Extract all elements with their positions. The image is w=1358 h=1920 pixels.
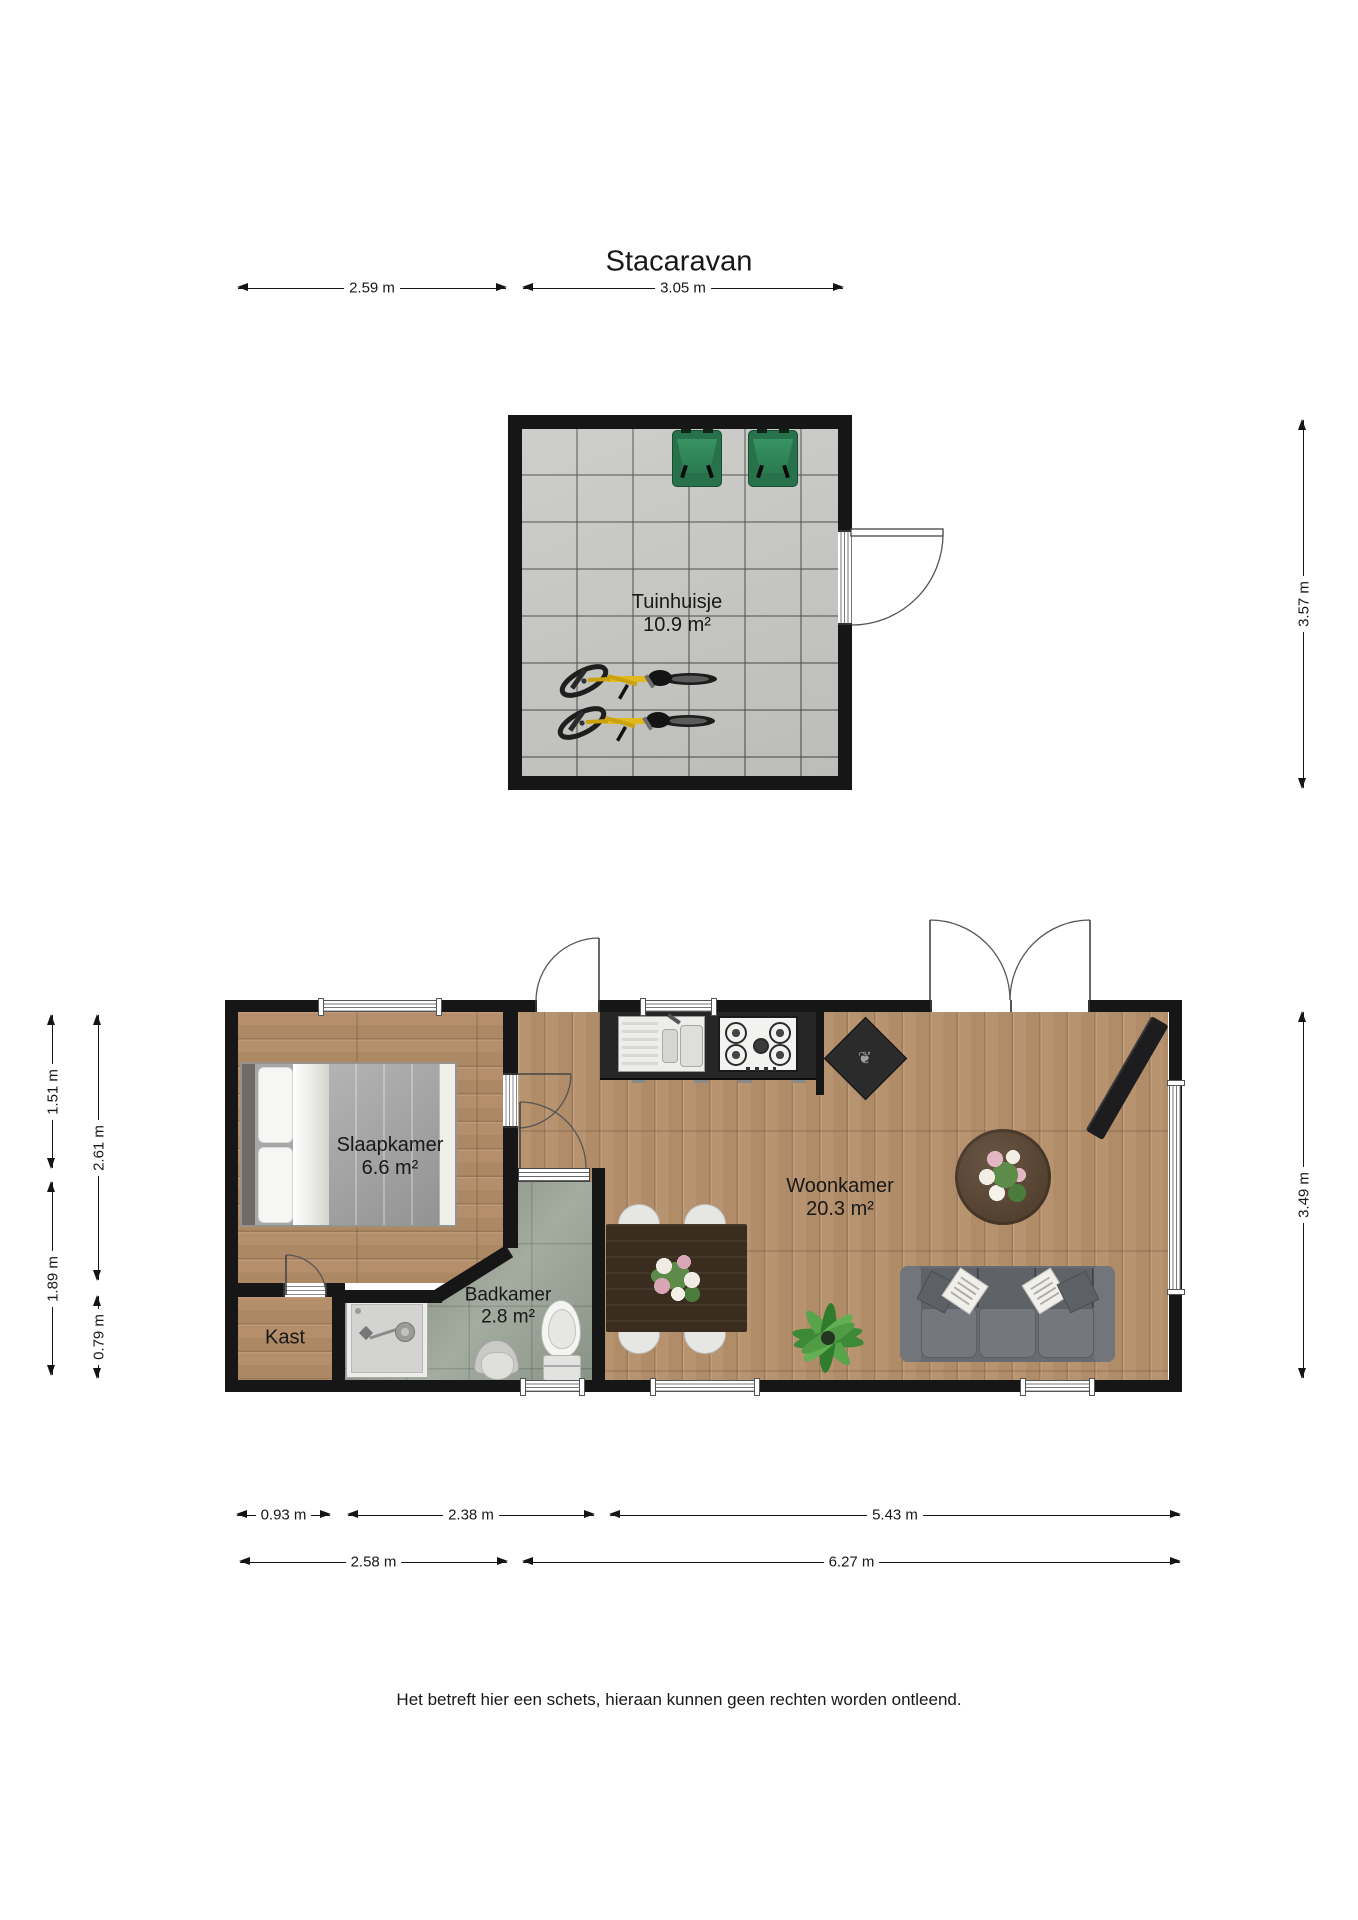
seat-cushion (1038, 1308, 1094, 1358)
arrow-right-icon (320, 1510, 331, 1518)
badkamer-wall-top-left (332, 1290, 442, 1303)
dim-bottom-r2-woonkamer: 6.27 m (523, 1562, 1180, 1563)
dim-label: 0.79 m (91, 1309, 108, 1365)
arrow-right-icon (584, 1510, 595, 1518)
kast-door-swing-icon (284, 1252, 330, 1297)
room-name: Badkamer (465, 1284, 552, 1305)
seat-cushion (979, 1308, 1035, 1358)
arrow-down-icon (47, 1158, 55, 1169)
room-name: Woonkamer (786, 1175, 893, 1197)
dim-top-left: 2.59 m (238, 288, 506, 289)
bicycle-icon (556, 703, 715, 743)
front-door-swing-icon (533, 935, 603, 1003)
slaapkamer-window (323, 1000, 437, 1012)
gas-hob (718, 1016, 798, 1072)
kast-wall-top-left (225, 1283, 283, 1297)
arrow-left-icon (522, 1557, 533, 1565)
dim-bottom-r1-woonkamer: 5.43 m (610, 1515, 1180, 1516)
counter-handle (738, 1080, 752, 1083)
flower-bouquet-icon (975, 1147, 1031, 1207)
door-leaf (851, 529, 943, 536)
tuinhuisje-wall-left (508, 415, 522, 790)
kitchen-window (645, 1000, 712, 1012)
woonkamer-window-bottom (1025, 1380, 1090, 1392)
dim-label: 2.58 m (346, 1553, 402, 1572)
shower (347, 1300, 427, 1377)
badkamer-label: Badkamer 2.8 m² (465, 1284, 552, 1327)
floorplan-page: Stacaravan 2.59 m 3.05 m (0, 0, 1358, 1920)
arrow-down-icon (1298, 1368, 1306, 1379)
dim-bottom-r1-badkamer: 2.38 m (348, 1515, 594, 1516)
tuinhuisje-wall-bottom (508, 776, 852, 790)
arrow-left-icon (522, 283, 533, 291)
arrow-right-icon (1170, 1557, 1181, 1565)
dim-label: 2.38 m (443, 1506, 499, 1525)
room-area: 6.6 m² (337, 1157, 444, 1180)
main-wall-left (225, 1000, 238, 1392)
dim-left-inner-2: 0.79 m (98, 1296, 99, 1378)
dim-label: 5.43 m (867, 1506, 923, 1525)
arrow-up-icon (93, 1014, 101, 1025)
hob-knobs (746, 1067, 776, 1071)
bed-headboard (242, 1064, 255, 1225)
dim-main-height: 3.49 m (1303, 1012, 1304, 1378)
sofa-seats (921, 1308, 1094, 1358)
badkamer-door-swing-icon (518, 1098, 592, 1170)
dim-left-inner-1: 2.61 m (98, 1015, 99, 1280)
kast-badkamer-wall (332, 1297, 345, 1380)
chair-seat (481, 1352, 514, 1380)
arrow-up-icon (47, 1181, 55, 1192)
arrow-down-icon (1298, 778, 1306, 789)
arrow-left-icon (347, 1510, 358, 1518)
kitchen-sink (618, 1016, 705, 1072)
arrow-right-icon (833, 283, 844, 291)
double-door-swing-icon (928, 918, 1092, 1002)
bathroom-chair (474, 1340, 519, 1380)
tuinhuisje-label: Tuinhuisje 10.9 m² (632, 591, 722, 637)
room-area: 2.8 m² (465, 1306, 552, 1328)
dim-bottom-r1-kast: 0.93 m (237, 1515, 330, 1516)
tuinhuisje-wall-top (508, 415, 852, 429)
bed-pillow (258, 1147, 293, 1223)
woonkamer-label: Woonkamer 20.3 m² (786, 1175, 893, 1221)
badkamer-wall-right (592, 1168, 605, 1380)
arrow-left-icon (239, 1557, 250, 1565)
arrow-down-icon (93, 1270, 101, 1281)
dim-left-outer-1: 1.51 m (52, 1015, 53, 1168)
shower-head-icon (395, 1322, 415, 1342)
slaapkamer-wall-right-upper (503, 1012, 518, 1073)
badkamer-window (525, 1380, 580, 1392)
burner-icon (725, 1022, 747, 1044)
slaapkamer-wall-right-lower (503, 1128, 518, 1248)
burner-small-icon (753, 1038, 769, 1054)
shower-drain-icon (355, 1308, 361, 1314)
bicycle-icon (558, 661, 717, 701)
dining-window (655, 1380, 755, 1392)
dim-label: 6.27 m (824, 1553, 880, 1572)
burner-icon (725, 1044, 747, 1066)
seat-cushion (921, 1308, 977, 1358)
wheelie-bin-icon (748, 430, 798, 487)
page-title: Stacaravan (606, 246, 753, 279)
bed-pillow (258, 1067, 293, 1143)
arrow-left-icon (237, 283, 248, 291)
arrow-up-icon (1298, 1011, 1306, 1022)
room-name: Kast (265, 1327, 305, 1349)
dim-label: 3.57 m (1296, 576, 1313, 632)
badkamer-door-opening (518, 1168, 590, 1182)
arrow-right-icon (1170, 1510, 1181, 1518)
dim-label: 2.61 m (91, 1120, 108, 1176)
bin-wheel (706, 465, 714, 479)
arrow-down-icon (93, 1368, 101, 1379)
tuinhuisje-door-swing-icon (850, 528, 948, 628)
faucet-icon (667, 1013, 681, 1024)
burner-icon (769, 1022, 791, 1044)
dining-table (606, 1224, 747, 1332)
kast-label: Kast (265, 1327, 305, 1350)
room-area: 10.9 m² (632, 614, 722, 637)
flower-centerpiece-icon (648, 1250, 704, 1306)
wheelie-bin-icon (672, 430, 722, 487)
dim-label: 1.51 m (45, 1064, 62, 1120)
arrow-left-icon (236, 1510, 247, 1518)
bicycles-icon (548, 652, 734, 752)
coffee-table (955, 1129, 1051, 1225)
dim-label: 3.05 m (655, 279, 711, 298)
bin-wheel (782, 465, 790, 479)
arrow-up-icon (1298, 419, 1306, 430)
arrow-up-icon (93, 1295, 101, 1306)
dim-label: 3.49 m (1296, 1167, 1313, 1223)
stove-ornament-icon: ❦ (858, 1049, 872, 1069)
dim-label: 0.93 m (256, 1506, 312, 1525)
counter-handle (792, 1080, 806, 1083)
sofa-armrest (1094, 1266, 1115, 1362)
disclaimer-text: Het betreft hier een schets, hieraan kun… (396, 1690, 961, 1710)
dim-bottom-r2-slaapkamer: 2.58 m (240, 1562, 507, 1563)
sink-drainer (622, 1022, 658, 1066)
room-name: Tuinhuisje (632, 591, 722, 613)
counter-handle (694, 1080, 708, 1083)
arrow-right-icon (496, 283, 507, 291)
toilet-seat (548, 1309, 576, 1349)
dim-label: 1.89 m (45, 1251, 62, 1307)
slaapkamer-label: Slaapkamer 6.6 m² (337, 1134, 444, 1180)
dim-top-right: 3.05 m (523, 288, 843, 289)
room-area: 20.3 m² (786, 1198, 893, 1221)
woonkamer-window-right (1169, 1085, 1181, 1290)
toilet-tank (543, 1355, 581, 1381)
floor-plant-icon (786, 1294, 870, 1382)
room-name: Slaapkamer (337, 1134, 444, 1156)
kitchen-wall-stub (816, 1012, 824, 1095)
kitchen-counter (600, 1012, 823, 1080)
sofa (900, 1266, 1115, 1362)
burner-icon (769, 1044, 791, 1066)
arrow-left-icon (609, 1510, 620, 1518)
sofa-armrest (900, 1266, 921, 1362)
dim-left-outer-2: 1.89 m (52, 1182, 53, 1375)
dim-tuinhuisje-height: 3.57 m (1303, 420, 1304, 788)
arrow-up-icon (47, 1014, 55, 1025)
bed-sheet-fold (293, 1064, 329, 1225)
arrow-down-icon (47, 1365, 55, 1376)
sink-bowl-small (662, 1029, 678, 1063)
sink-bowl-large (680, 1025, 703, 1067)
counter-handle (632, 1080, 646, 1083)
arrow-right-icon (497, 1557, 508, 1565)
dim-label: 2.59 m (344, 279, 400, 298)
